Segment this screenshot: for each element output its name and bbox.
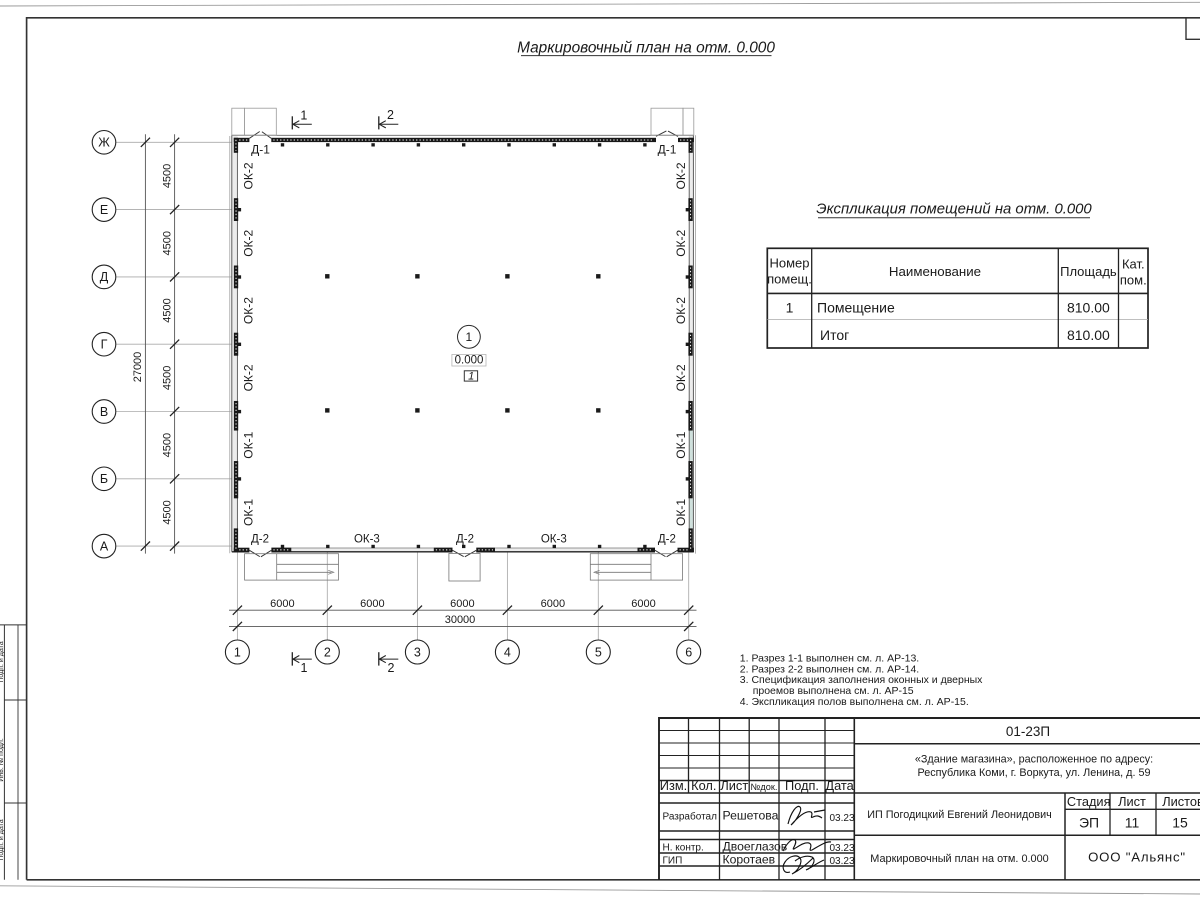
- svg-text:Подп. и дата: Подп. и дата: [0, 819, 5, 860]
- svg-text:Стадия: Стадия: [1067, 794, 1111, 809]
- svg-text:6000: 6000: [270, 598, 294, 610]
- svg-text:Е: Е: [100, 203, 108, 217]
- svg-text:4500: 4500: [162, 433, 174, 457]
- svg-text:Кол.: Кол.: [691, 778, 716, 793]
- svg-text:Дата: Дата: [825, 778, 854, 793]
- svg-text:ИП Погодицкий Евгений Леонидов: ИП Погодицкий Евгений Леонидович: [867, 809, 1052, 821]
- svg-text:ОК-2: ОК-2: [241, 364, 255, 391]
- svg-text:ОК-2: ОК-2: [241, 297, 255, 324]
- svg-text:1: 1: [466, 330, 473, 344]
- svg-text:5: 5: [595, 645, 602, 659]
- svg-text:6000: 6000: [360, 598, 384, 610]
- svg-text:Коротаев: Коротаев: [723, 853, 776, 867]
- svg-text:03.23: 03.23: [830, 813, 855, 824]
- svg-text:Решетова: Решетова: [723, 809, 779, 823]
- svg-text:Двоеглазов: Двоеглазов: [723, 840, 788, 854]
- svg-text:6000: 6000: [541, 598, 565, 610]
- svg-text:1: 1: [234, 645, 241, 659]
- svg-text:Республика Коми, г. Воркута, у: Республика Коми, г. Воркута, ул. Ленина,…: [918, 767, 1151, 779]
- svg-text:ОК-3: ОК-3: [541, 533, 567, 545]
- svg-text:2: 2: [387, 108, 394, 122]
- svg-text:Экспликация помещений на отм.: Экспликация помещений на отм. 0.000: [816, 202, 1092, 218]
- svg-text:ОК-2: ОК-2: [674, 297, 688, 324]
- svg-text:ОК-2: ОК-2: [674, 229, 688, 256]
- svg-text:4500: 4500: [162, 500, 174, 524]
- svg-text:Инв. № подл.: Инв. № подл.: [0, 738, 5, 782]
- svg-text:3: 3: [414, 645, 421, 659]
- svg-text:30000: 30000: [445, 614, 476, 626]
- svg-text:0.000: 0.000: [455, 355, 484, 367]
- svg-text:1: 1: [300, 108, 307, 122]
- svg-text:ОК-1: ОК-1: [674, 431, 688, 458]
- svg-text:Н. контр.: Н. контр.: [663, 843, 704, 854]
- svg-text:ОК-2: ОК-2: [241, 229, 255, 256]
- svg-text:4500: 4500: [162, 366, 174, 390]
- svg-text:Ж: Ж: [98, 136, 110, 150]
- svg-text:1: 1: [301, 661, 308, 675]
- svg-text:Кат.: Кат.: [1122, 257, 1145, 272]
- svg-text:Д-1: Д-1: [658, 142, 677, 156]
- svg-text:1: 1: [468, 370, 474, 382]
- svg-text:ОК-1: ОК-1: [241, 499, 255, 526]
- svg-text:6000: 6000: [631, 598, 655, 610]
- svg-text:Листов: Листов: [1162, 794, 1200, 809]
- svg-text:Подп.: Подп.: [785, 778, 819, 793]
- svg-text:Итог: Итог: [820, 327, 849, 343]
- svg-text:Д: Д: [100, 270, 109, 284]
- svg-text:810.00: 810.00: [1067, 327, 1110, 343]
- svg-text:Лист: Лист: [720, 778, 748, 793]
- svg-text:№док.: №док.: [751, 782, 778, 792]
- svg-text:Маркировочный план на отм. 0.0: Маркировочный план на отм. 0.000: [870, 853, 1048, 865]
- svg-text:4. Экспликация полов выполнена: 4. Экспликация полов выполнена см. л. АР…: [740, 696, 969, 708]
- svg-text:А: А: [100, 539, 109, 553]
- svg-text:помещ.: помещ.: [767, 272, 812, 287]
- svg-text:В: В: [100, 405, 108, 419]
- svg-text:ОК-2: ОК-2: [241, 162, 255, 189]
- svg-text:ОК-3: ОК-3: [354, 533, 380, 545]
- svg-text:03.23: 03.23: [830, 843, 855, 854]
- svg-text:4500: 4500: [162, 231, 174, 255]
- svg-text:Б: Б: [100, 472, 108, 486]
- svg-text:2: 2: [324, 645, 331, 659]
- svg-text:Д-2: Д-2: [251, 533, 269, 545]
- svg-text:2: 2: [388, 661, 395, 675]
- svg-text:Д-1: Д-1: [251, 142, 270, 156]
- svg-text:Номер: Номер: [769, 256, 809, 271]
- svg-text:ОК-1: ОК-1: [674, 499, 688, 526]
- svg-text:Наименование: Наименование: [889, 264, 981, 279]
- svg-text:15: 15: [1172, 815, 1188, 831]
- svg-text:ООО "Альянс": ООО "Альянс": [1088, 850, 1186, 865]
- svg-text:Разработал: Разработал: [663, 811, 718, 823]
- svg-text:4: 4: [504, 645, 511, 659]
- svg-text:Изм.: Изм.: [660, 778, 687, 793]
- svg-text:4500: 4500: [162, 164, 174, 188]
- svg-text:«Здание магазина», расположенн: «Здание магазина», расположенное по адре…: [915, 754, 1153, 766]
- svg-text:ЭП: ЭП: [1079, 815, 1099, 831]
- svg-text:Д-2: Д-2: [456, 533, 474, 545]
- svg-text:Г: Г: [101, 338, 108, 352]
- svg-text:1: 1: [786, 299, 794, 315]
- svg-text:ОК-2: ОК-2: [674, 364, 688, 391]
- svg-text:ГИП: ГИП: [663, 856, 683, 867]
- svg-text:27000: 27000: [132, 352, 144, 383]
- svg-text:Подп. и дата: Подп. и дата: [0, 641, 5, 682]
- svg-text:6: 6: [685, 645, 692, 659]
- svg-text:6000: 6000: [450, 598, 474, 610]
- svg-text:03.23: 03.23: [830, 856, 855, 867]
- svg-text:пом.: пом.: [1120, 273, 1147, 288]
- svg-text:Д-2: Д-2: [658, 533, 676, 545]
- svg-text:Лист: Лист: [1118, 794, 1146, 809]
- svg-text:4500: 4500: [162, 298, 174, 322]
- svg-text:ОК-2: ОК-2: [674, 162, 688, 189]
- svg-text:810.00: 810.00: [1067, 299, 1110, 315]
- svg-text:ОК-1: ОК-1: [241, 431, 255, 458]
- svg-text:Маркировочный план на отм. 0.0: Маркировочный план на отм. 0.000: [517, 40, 775, 57]
- svg-text:Помещение: Помещение: [817, 299, 895, 315]
- svg-text:Площадь: Площадь: [1060, 264, 1117, 279]
- svg-text:11: 11: [1125, 815, 1140, 831]
- svg-text:01-23П: 01-23П: [1006, 724, 1050, 739]
